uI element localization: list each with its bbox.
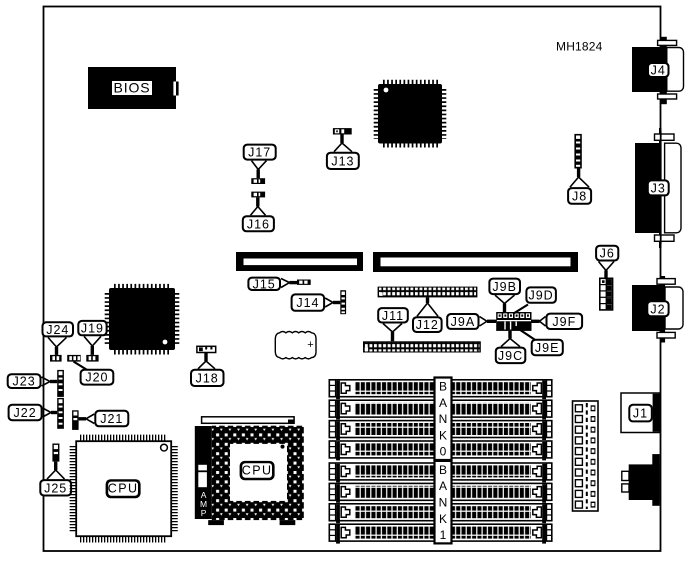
svg-text:J9A: J9A: [451, 315, 476, 329]
svg-text:CPU: CPU: [242, 464, 273, 478]
svg-text:J22: J22: [14, 406, 37, 420]
svg-text:N: N: [439, 496, 448, 510]
svg-text:N: N: [439, 412, 448, 426]
svg-text:+: +: [307, 339, 313, 351]
svg-text:J24: J24: [46, 323, 69, 337]
svg-text:MH1824: MH1824: [556, 40, 603, 54]
svg-text:K: K: [439, 428, 447, 442]
svg-text:J9E: J9E: [535, 341, 560, 355]
svg-text:J3: J3: [651, 181, 666, 195]
svg-text:J14: J14: [296, 296, 319, 310]
svg-text:J19: J19: [81, 322, 104, 336]
svg-text:J1: J1: [633, 407, 648, 421]
svg-text:J13: J13: [331, 154, 354, 168]
svg-text:J17: J17: [248, 146, 271, 160]
svg-text:J4: J4: [651, 64, 666, 78]
svg-text:0: 0: [440, 445, 447, 459]
svg-text:J23: J23: [13, 375, 36, 389]
svg-text:CPU: CPU: [108, 482, 139, 496]
svg-text:J9B: J9B: [492, 280, 517, 294]
svg-text:J8: J8: [572, 189, 587, 203]
svg-text:J6: J6: [600, 247, 615, 261]
svg-text:J2: J2: [650, 302, 665, 316]
svg-text:J11: J11: [382, 309, 404, 323]
svg-text:J15: J15: [253, 277, 276, 291]
svg-text:J9C: J9C: [498, 349, 523, 363]
svg-text:J20: J20: [85, 371, 108, 385]
svg-text:J9D: J9D: [528, 289, 553, 303]
svg-text:A: A: [439, 479, 447, 493]
svg-text:J12: J12: [416, 318, 439, 332]
svg-text:1: 1: [440, 528, 447, 542]
svg-text:J21: J21: [100, 412, 123, 426]
svg-text:J25: J25: [44, 481, 67, 495]
svg-text:BIOS: BIOS: [113, 80, 150, 96]
svg-text:B: B: [439, 380, 447, 394]
svg-text:P: P: [201, 508, 207, 518]
svg-text:B: B: [439, 463, 447, 477]
svg-text:J18: J18: [196, 371, 219, 385]
svg-text:J16: J16: [247, 217, 270, 231]
svg-text:K: K: [439, 512, 447, 526]
svg-text:A: A: [439, 396, 447, 410]
svg-text:J9F: J9F: [552, 315, 576, 329]
